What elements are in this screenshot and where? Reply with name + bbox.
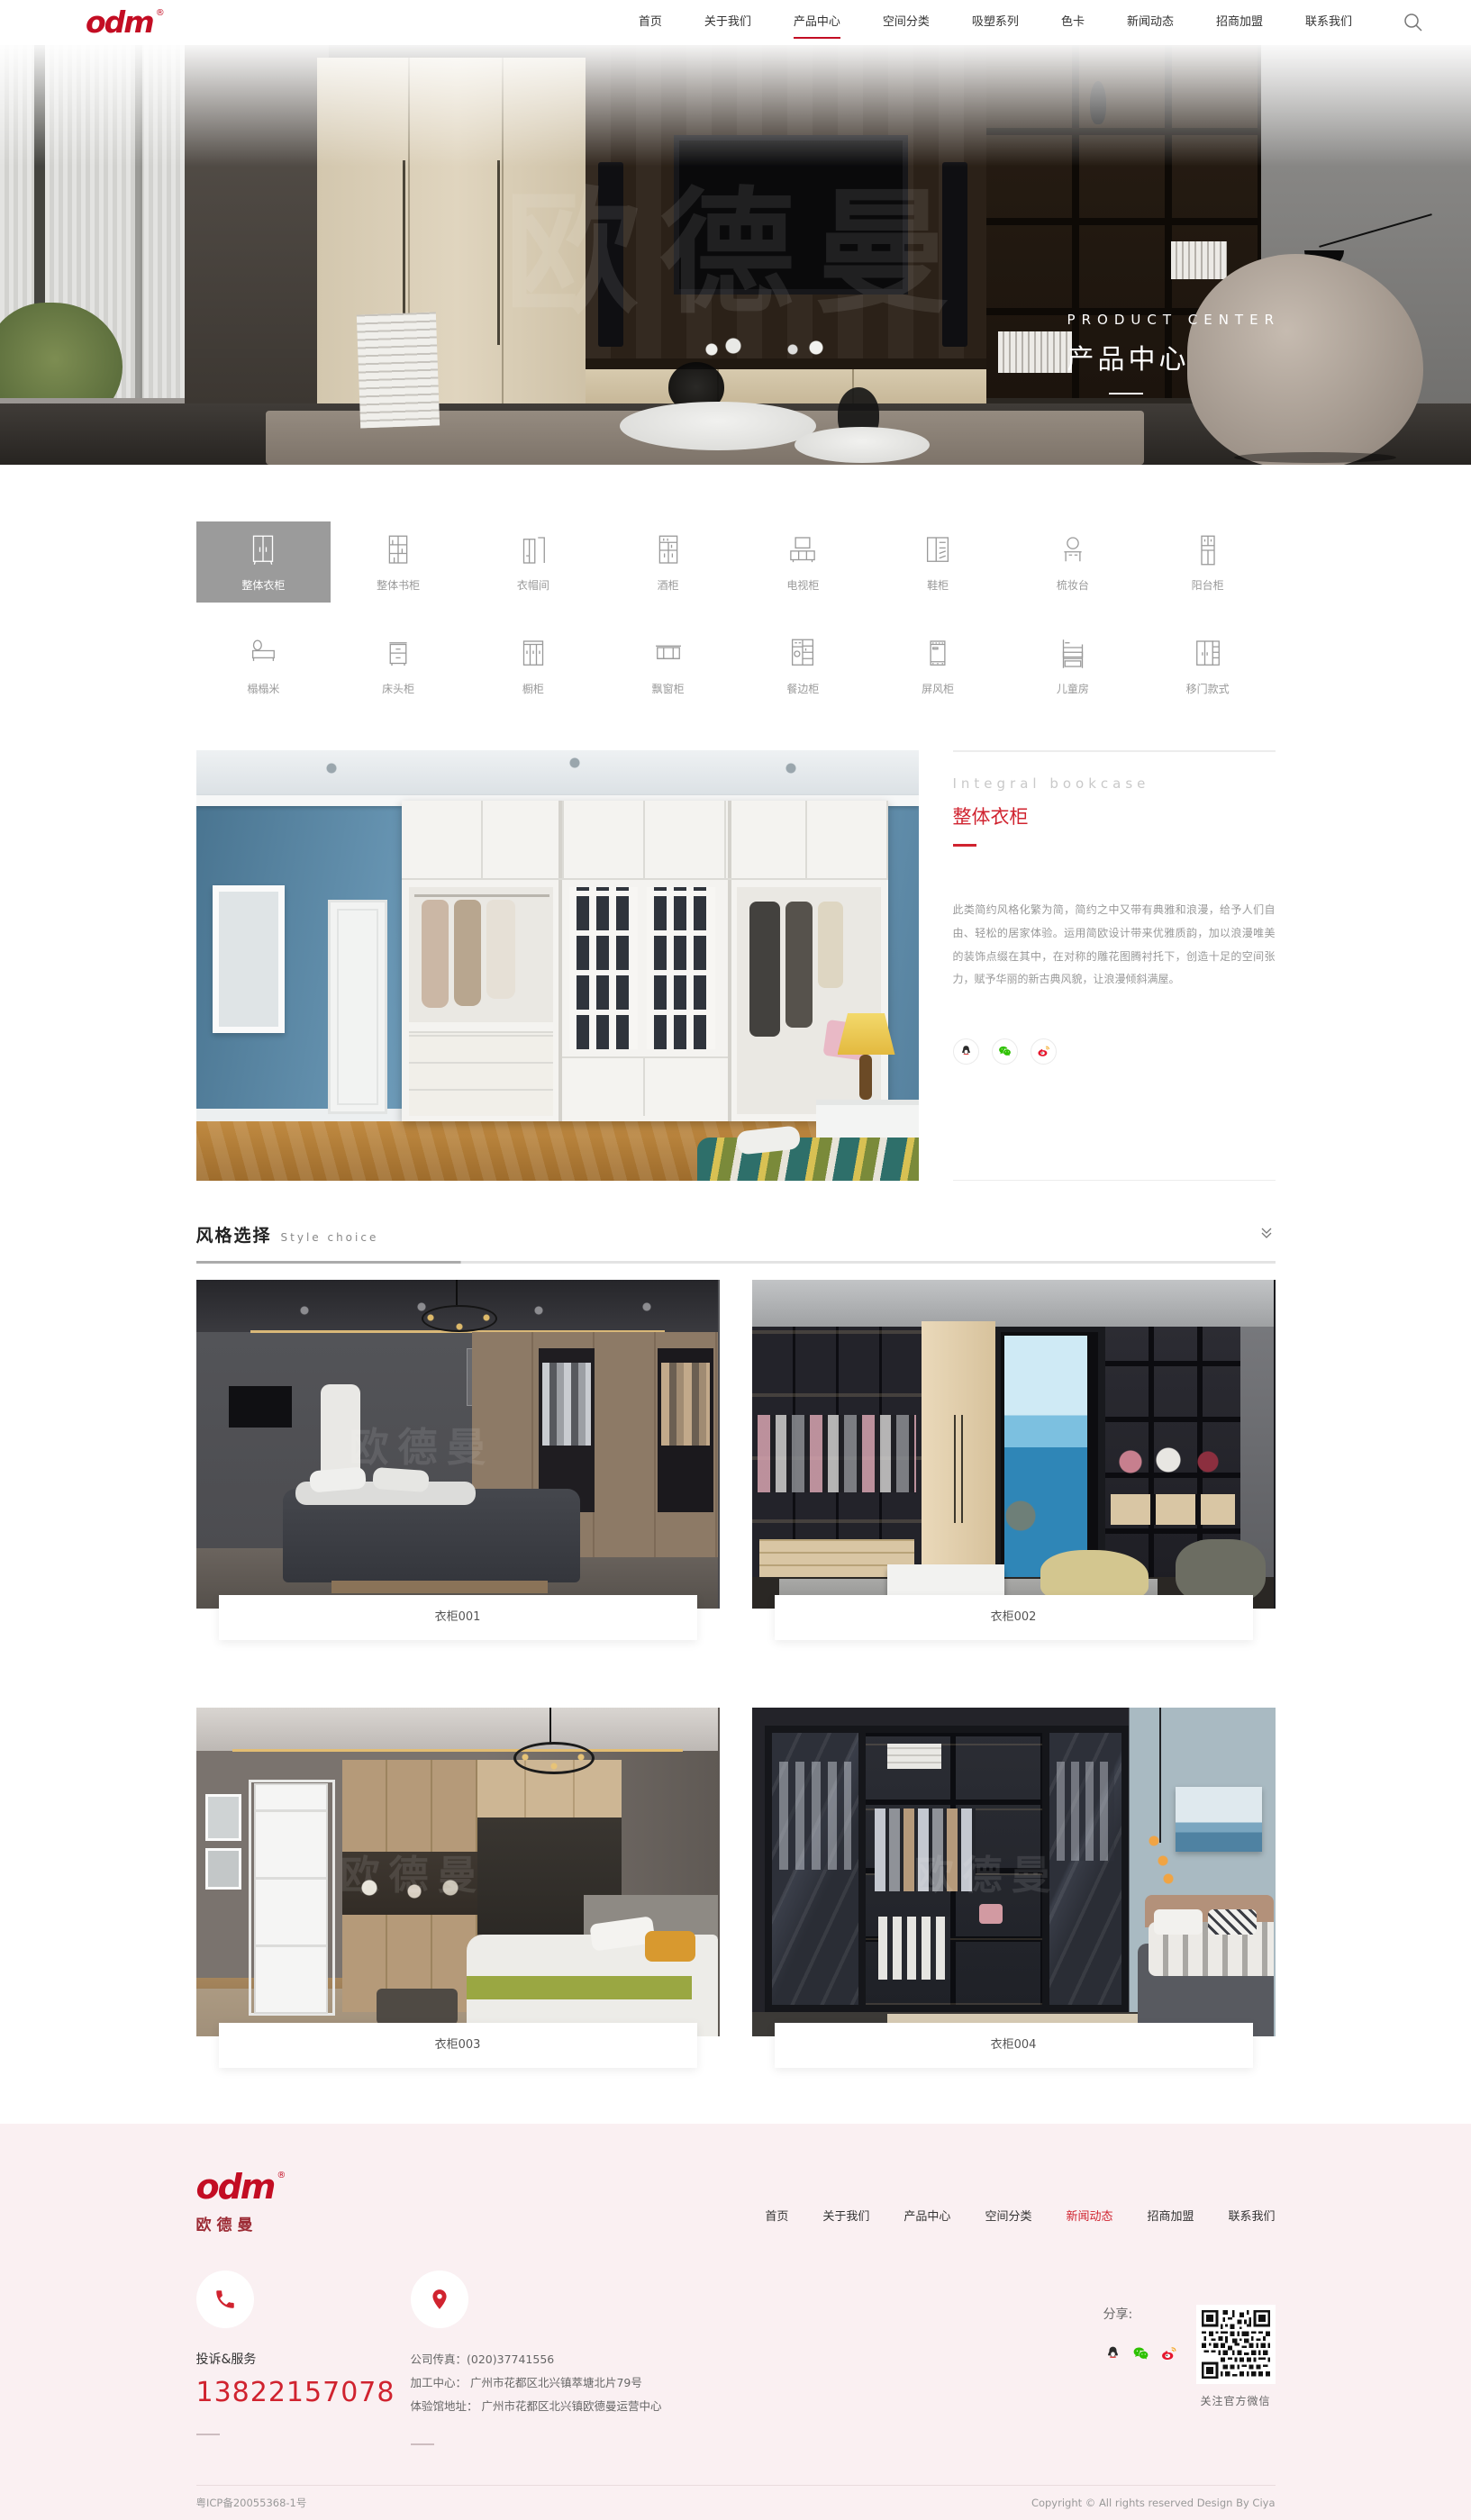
category-item-cupboard[interactable]: 橱柜 [466,625,601,706]
clothes-row [758,1415,916,1492]
wall-art [205,1794,241,1841]
drawer-band [1111,1494,1235,1525]
factory-line: 加工中心： 广州市花都区北兴镇萃塘北片79号 [411,2371,915,2395]
screen-cabinet-icon [919,635,957,673]
detail-photo [196,750,919,1181]
product-card[interactable]: 欧德曼 衣柜003 [196,1708,720,2068]
room-door [328,900,387,1114]
product-name[interactable]: 衣柜003 [219,2023,697,2068]
pendant-bulbs [1147,1832,1176,1888]
clothes [454,900,481,1006]
window-mullion [1089,1332,1098,1581]
product-photo: 欧德曼 [196,1280,720,1609]
nav-item-about[interactable]: 关于我们 [704,0,751,45]
ceiling [196,1708,718,1751]
logo-text: odm [196,2169,275,2205]
nav-item-products[interactable]: 产品中心 [794,0,840,45]
category-item-balcony-cabinet[interactable]: 阳台柜 [1140,521,1276,603]
sliding-door-icon [1189,635,1227,673]
footer-nav: 首页 关于我们 产品中心 空间分类 新闻动态 招商加盟 联系我们 [765,2207,1275,2224]
pendant-cord [1159,1708,1161,1843]
nightstand-icon [379,635,417,673]
hanging-pants [878,1917,950,1980]
product-card[interactable]: 欧德曼 衣柜001 [196,1280,720,1640]
detail-dash [953,844,976,847]
footer-nav-contact[interactable]: 联系我们 [1228,2207,1275,2224]
address-block: 公司传真：(020)37741556 加工中心： 广州市花都区北兴镇萃塘北片79… [411,2271,915,2445]
service-phone[interactable]: 13822157078 [196,2377,411,2408]
orange-pillow [645,1931,695,1962]
wardrobe-icon [244,531,282,569]
sideboard-icon [784,635,822,673]
clothes [486,900,515,999]
category-item-screen-cabinet[interactable]: 屏风柜 [870,625,1005,706]
nav-item-color-card[interactable]: 色卡 [1061,0,1085,45]
bed-blanket [697,1138,919,1181]
nav-item-contact[interactable]: 联系我们 [1305,0,1352,45]
wall-art [205,1848,241,1890]
divider-dash [196,2434,220,2435]
category-grid: 整体衣柜 整体书柜 衣帽间 酒柜 电视柜 鞋柜 梳妆台 阳台柜 榻榻米 床头柜 … [196,521,1276,706]
wechat-icon[interactable] [992,1038,1018,1065]
drawers [409,1031,553,1116]
clothes [422,900,449,1008]
kids-room-icon [1054,635,1092,673]
category-item-nightstand[interactable]: 床头柜 [331,625,466,706]
hero-title-en: PRODUCT CENTER [1067,312,1280,328]
wechat-icon[interactable] [1131,2344,1150,2363]
product-name[interactable]: 衣柜004 [775,2023,1253,2068]
coffee-table [887,1564,1004,1597]
service-block: 投诉&服务 13822157078 [196,2271,411,2445]
category-item-kids-room[interactable]: 儿童房 [1005,625,1140,706]
footer-nav-about[interactable]: 关于我们 [822,2207,869,2224]
category-item-cloakroom[interactable]: 衣帽间 [466,521,601,603]
clothes [785,902,813,1028]
main-nav: 首页 关于我们 产品中心 空间分类 吸塑系列 色卡 新闻动态 招商加盟 联系我们 [639,0,1352,45]
header: odm ® 首页 关于我们 产品中心 空间分类 吸塑系列 色卡 新闻动态 招商加… [0,0,1471,45]
weibo-icon[interactable] [1159,2344,1178,2363]
footer-logo[interactable]: odm ® 欧德曼 [196,2169,286,2234]
nav-item-news[interactable]: 新闻动态 [1127,0,1174,45]
nav-item-home[interactable]: 首页 [639,0,662,45]
dressing-table-icon [1054,531,1092,569]
clothes [661,1363,710,1446]
wine-cabinet-icon [649,531,687,569]
product-grid: 欧德曼 衣柜001 衣柜002 [196,1280,1276,2068]
product-card[interactable]: 欧德曼 衣柜004 [752,1708,1276,2068]
nav-item-spaces[interactable]: 空间分类 [883,0,930,45]
coffee-table [795,427,930,463]
style-title-zh: 风格选择 [196,1222,272,1246]
chandelier [422,1305,497,1332]
clothes [779,1762,851,1870]
category-item-sliding-door[interactable]: 移门款式 [1140,625,1276,706]
footer-nav-news[interactable]: 新闻动态 [1066,2207,1112,2224]
category-item-bay-window-cabinet[interactable]: 飘窗柜 [601,625,736,706]
logo-text: odm [86,6,153,39]
brand-watermark: 欧德曼 [914,1843,1060,1900]
style-title-en: Style choice [281,1231,379,1244]
brand-watermark: 欧德曼 [341,1843,486,1900]
product-card[interactable]: 衣柜002 [752,1280,1276,1640]
phone-icon [196,2271,254,2328]
detail-panel: Integral bookcase 整体衣柜 此类简约风格化繁为简，简约之中又带… [953,750,1276,1181]
product-photo: 欧德曼 [752,1708,1276,2036]
footer-nav-join[interactable]: 招商加盟 [1147,2207,1194,2224]
handbags [1111,1438,1237,1478]
wechat-qr-block: 关注官方微信 [1196,2305,1276,2408]
cove-light [232,1749,683,1752]
qq-icon[interactable] [1103,2344,1122,2363]
product-photo [752,1280,1276,1609]
tv [229,1386,292,1428]
logo[interactable]: odm ® [86,6,165,39]
footer-nav-home[interactable]: 首页 [765,2207,788,2224]
registered-mark: ® [277,2171,286,2180]
tray-table [377,1989,458,2025]
nav-item-join[interactable]: 招商加盟 [1216,0,1263,45]
bench [331,1581,548,1593]
glass-door [647,887,715,1049]
corner-column [922,1321,995,1584]
category-item-wardrobe[interactable]: 整体衣柜 [196,521,331,603]
tatami-icon [244,635,282,673]
detail-subtitle-en: Integral bookcase [953,775,1276,792]
detail-title: 整体衣柜 [953,802,1276,829]
glass-door [569,887,638,1049]
book-stack [357,313,440,429]
category-item-shoe-cabinet[interactable]: 鞋柜 [870,521,1005,603]
service-label: 投诉&服务 [196,2350,411,2368]
balcony-cabinet-icon [1189,531,1227,569]
books [1171,241,1227,279]
hero-title-zh: 产品中心 [1067,337,1280,376]
product-name[interactable]: 衣柜002 [775,1595,1253,1640]
hanger-rod [414,894,549,897]
ceiling [752,1280,1274,1327]
footer-nav-products[interactable]: 产品中心 [903,2207,950,2224]
door-handle [961,1415,963,1523]
registered-mark: ® [156,8,165,18]
icp-number[interactable]: 粤ICP备20055368-1号 [196,2496,307,2510]
showroom-line: 体验馆地址： 广州市花都区北兴镇欧德曼运营中心 [411,2395,915,2418]
lamp-body [859,1055,872,1100]
footer-bottom-bar: 粤ICP备20055368-1号 Copyright © All rights … [196,2485,1276,2520]
product-name[interactable]: 衣柜001 [219,1595,697,1640]
coffee-table [620,402,816,450]
divider-dash [411,2443,434,2445]
search-icon[interactable] [1403,12,1424,33]
nav-item-blister-series[interactable]: 吸塑系列 [972,0,1019,45]
books [998,331,1072,373]
chevron-double-down-icon[interactable] [1258,1224,1276,1246]
clothes [1057,1762,1114,1861]
top-fade [0,45,1471,167]
bookcase-icon [379,531,417,569]
clothes [749,902,780,1037]
green-runner [467,1976,692,1999]
footer-nav-spaces[interactable]: 空间分类 [985,2207,1031,2224]
chair-shadow [1234,452,1396,463]
chandelier [513,1742,595,1774]
cupboard-icon [514,635,552,673]
category-item-dressing-table[interactable]: 梳妆台 [1005,521,1140,603]
wardrobe [402,801,888,1121]
detail-description: 此类简约风格化繁为简，简约之中又带有典雅和浪漫，给予人们自由、轻松的居家体验。运… [953,899,1276,992]
sailboat-picture [1176,1787,1262,1852]
white-door [254,1783,328,2014]
category-item-bookcase[interactable]: 整体书柜 [331,521,466,603]
tv-cabinet-icon [784,531,822,569]
clothes [542,1363,591,1446]
ceiling [196,750,919,801]
footer: odm ® 欧德曼 首页 关于我们 产品中心 空间分类 新闻动态 招商加盟 联系… [0,2124,1471,2520]
hero-title: PRODUCT CENTER 产品中心 [1067,312,1280,394]
section-divider [196,1261,1276,1264]
style-choice-section: 风格选择 Style choice [196,1222,1276,1264]
product-detail: Integral bookcase 整体衣柜 此类简约风格化繁为简，简约之中又带… [196,750,1276,1181]
hero-banner: 欧德曼 PRODUCT CENTER 产品中心 [0,45,1471,465]
top-doors [402,801,888,880]
bay-window-cabinet-icon [649,635,687,673]
brand-watermark: 欧德曼 [504,144,969,340]
share-label: 分享: [1103,2305,1178,2323]
category-item-tv-cabinet[interactable]: 电视柜 [736,521,871,603]
product-photo: 欧德曼 [196,1708,720,2036]
qq-icon[interactable] [953,1038,979,1065]
qr-caption: 关注官方微信 [1196,2393,1276,2408]
share-row [953,1038,1276,1065]
picture-frame [213,885,285,1033]
pillow [1208,1909,1257,1935]
brand-watermark: 欧德曼 [350,1415,495,1473]
category-item-sideboard[interactable]: 餐边柜 [736,625,871,706]
weibo-icon[interactable] [1031,1038,1057,1065]
tv-cabinet-top [586,358,986,369]
logo-subtext: 欧德曼 [196,2212,286,2234]
chandelier-stem [549,1708,551,1744]
share-block: 分享: [1103,2305,1276,2445]
wardrobe-handle [497,160,500,345]
chandelier-stem [456,1280,458,1305]
category-item-wine-cabinet[interactable]: 酒柜 [601,521,736,603]
location-pin-icon [411,2271,468,2328]
cloakroom-icon [514,531,552,569]
lower-doors [562,1056,728,1116]
clothes [818,902,843,988]
qr-code [1196,2305,1276,2384]
door-handle [954,1415,956,1523]
shoe-cabinet-icon [919,531,957,569]
copyright: Copyright © All rights reserved Design B… [1031,2497,1276,2509]
fax-line: 公司传真：(020)37741556 [411,2348,915,2371]
folded-clothes [887,1744,941,1769]
category-item-tatami[interactable]: 榻榻米 [196,625,331,706]
hero-dash [1109,393,1143,394]
pillow [1154,1909,1203,1935]
pink-bag [979,1904,1003,1924]
